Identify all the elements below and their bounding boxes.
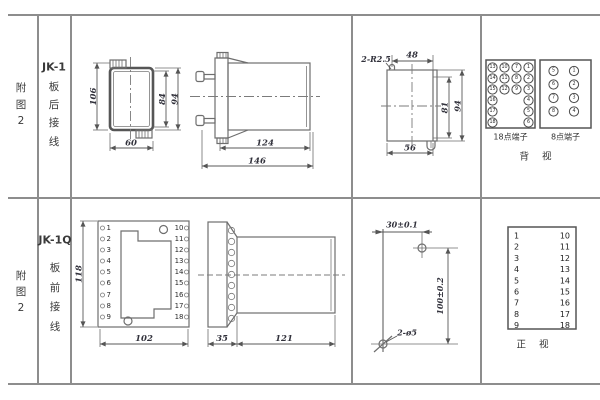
jk1-front-view: 106 84 94 60 xyxy=(89,57,181,151)
wiring-char: 板 xyxy=(49,80,60,93)
jk1q-front-view: 1 2 3 4 5 6 7 8 9 10 11 12 13 14 15 16 1… xyxy=(75,221,190,347)
terminal-number: 5 xyxy=(107,268,111,276)
terminal-number: 7 xyxy=(515,64,518,70)
table-number: 9 xyxy=(514,321,519,330)
terminal-number: 10 xyxy=(501,64,507,70)
wiring-char: 线 xyxy=(50,320,61,333)
table-number: 8 xyxy=(514,310,519,319)
row2-model-label: JK-1Q 板 前 接 线 xyxy=(37,234,71,334)
stepped-cutout-outline xyxy=(121,231,171,318)
dim-121: 121 xyxy=(237,315,335,347)
figure-char: 附 xyxy=(16,81,27,94)
terminal-circle: 8 xyxy=(512,74,521,83)
terminal-circle: 17 xyxy=(488,107,497,116)
terminal-circle: 12 xyxy=(500,85,509,94)
wiring-char: 接 xyxy=(50,300,61,313)
table-number: 2 xyxy=(514,243,519,252)
dim-35: 35 xyxy=(208,316,237,347)
case-outline xyxy=(110,68,153,130)
terminal-circle: 4 xyxy=(569,107,578,116)
terminal-circle: 4 xyxy=(524,96,533,105)
terminal-number: 15 xyxy=(489,86,495,92)
model-name: JK-1 xyxy=(41,61,66,74)
terminal-number: 13 xyxy=(175,257,184,265)
terminal-circle: 11 xyxy=(500,74,509,83)
terminal-number: 6 xyxy=(527,119,530,125)
dim-81: 81 xyxy=(433,77,452,138)
mounting-screw-bottom xyxy=(196,116,215,126)
terminal-number: 1 xyxy=(527,64,530,70)
terminal-number: 1 xyxy=(107,224,111,232)
terminal-number: 4 xyxy=(107,257,112,265)
flange-plate xyxy=(215,58,228,138)
rear-view-label: 背 视 xyxy=(519,151,556,163)
terminal-circle: 16 xyxy=(488,96,497,105)
front-view-label: 正 视 xyxy=(516,339,553,351)
table-number: 18 xyxy=(560,321,570,330)
figure-char: 图 xyxy=(16,286,27,298)
taper-line-top xyxy=(228,58,248,63)
terminal-number: 3 xyxy=(527,86,530,92)
terminal-number: 2 xyxy=(107,235,111,243)
terminal-number: 8 xyxy=(515,75,518,81)
table-number: 12 xyxy=(560,254,570,263)
jk1q-side-view: 35 121 xyxy=(198,222,345,347)
terminal-circle: 7 xyxy=(549,93,558,102)
dim-label: 30±0.1 xyxy=(386,220,418,230)
terminal-number: 6 xyxy=(552,81,555,87)
drilling-plan: 30±0.1 100±0.2 2-ø5 xyxy=(371,220,458,353)
radius-note: 2-R2.5 xyxy=(360,54,391,69)
terminal-number: 17 xyxy=(175,302,184,310)
terminal-number: 2 xyxy=(527,75,530,81)
wiring-char: 板 xyxy=(50,261,61,274)
dim-label: 124 xyxy=(256,139,274,149)
terminal-18pt-label: 18点端子 xyxy=(493,132,527,142)
terminal-18pt-box: 13 14 15 16 17 18 10 11 12 7 8 9 1 2 3 4… xyxy=(486,60,535,142)
figure-char: 图 xyxy=(16,99,27,111)
dim-106: 106 xyxy=(89,63,110,130)
terminal-number: 14 xyxy=(489,75,495,81)
dim-100: 100±0.2 xyxy=(435,248,448,344)
relay-dimension-figure-page: 附 图 2 JK-1 板 后 接 线 xyxy=(0,0,600,400)
terminal-circle: 3 xyxy=(569,93,578,102)
figure-char: 2 xyxy=(18,302,25,314)
terminal-number: 16 xyxy=(489,97,495,103)
terminal-number: 11 xyxy=(501,75,507,81)
dim-124: 124 xyxy=(220,132,310,151)
terminal-number: 18 xyxy=(489,119,495,125)
table-number: 16 xyxy=(560,299,570,308)
dim-label: 94 xyxy=(171,93,181,105)
terminal-block-side-top xyxy=(217,53,228,59)
row1-figure-number: 附 图 2 xyxy=(16,81,27,127)
table-number: 5 xyxy=(514,276,519,285)
terminal-number: 1 xyxy=(572,68,575,74)
figure-char: 2 xyxy=(18,115,25,127)
terminal-number: 15 xyxy=(175,279,184,287)
terminal-number: 5 xyxy=(527,108,530,114)
terminal-number: 7 xyxy=(107,291,111,299)
dim-label: 102 xyxy=(135,334,153,344)
terminal-number: 3 xyxy=(107,246,111,254)
dim-84: 84 xyxy=(153,71,169,127)
table-number: 10 xyxy=(560,232,570,241)
terminal-number: 12 xyxy=(175,246,184,254)
dim-60: 60 xyxy=(110,133,153,151)
terminal-number: 8 xyxy=(107,302,111,310)
dim-label: 146 xyxy=(248,157,266,167)
terminal-number: 17 xyxy=(489,108,495,114)
dim-label: 35 xyxy=(216,334,228,344)
figure-char: 附 xyxy=(16,269,27,282)
terminal-circle: 9 xyxy=(512,85,521,94)
holes-label: 2-ø5 xyxy=(396,328,417,338)
terminal-circle: 14 xyxy=(488,74,497,83)
case-inner-outline xyxy=(114,72,150,127)
terminal-number: 4 xyxy=(527,97,530,103)
mounting-screw-top xyxy=(196,72,215,82)
mount-hole-top xyxy=(160,226,168,234)
terminal-number: 14 xyxy=(175,268,184,276)
dim-label: 94 xyxy=(454,100,464,112)
terminal-number: 18 xyxy=(175,313,184,321)
dim-label: 100±0.2 xyxy=(435,277,445,315)
terminal-block-side-bottom xyxy=(217,138,228,144)
dim-label: 121 xyxy=(275,334,293,344)
terminal-number: 5 xyxy=(552,68,555,74)
front-terminals-left: 1 2 3 4 5 6 7 8 9 xyxy=(101,224,112,321)
terminal-circle: 18 xyxy=(488,118,497,127)
wiring-char: 线 xyxy=(49,135,60,148)
table-number: 3 xyxy=(514,254,519,263)
panel-cutout-view: 2-R2.5 48 81 94 56 xyxy=(360,51,465,157)
dim-102: 102 xyxy=(100,329,188,347)
terminal-circle: 1 xyxy=(524,63,533,72)
terminal-number: 9 xyxy=(515,86,518,92)
dim-label: 106 xyxy=(89,88,99,106)
table-number: 11 xyxy=(560,243,570,252)
terminal-number: 16 xyxy=(175,291,184,299)
terminal-number: 12 xyxy=(501,86,507,92)
terminal-circle: 6 xyxy=(549,80,558,89)
wiring-char: 接 xyxy=(49,116,60,129)
dim-label: 118 xyxy=(75,265,85,283)
terminal-circle: 8 xyxy=(549,107,558,116)
dim-label: 48 xyxy=(406,51,418,61)
table-left-column: 1 2 3 4 5 6 7 8 9 xyxy=(514,232,519,331)
table-number: 13 xyxy=(560,265,570,274)
table-number: 17 xyxy=(560,310,570,319)
terminal-8pt-box: 5 6 7 8 1 2 3 4 8点端子 xyxy=(540,60,591,142)
table-number: 7 xyxy=(514,299,519,308)
terminal-number: 4 xyxy=(572,108,575,114)
dim-146: 146 xyxy=(202,130,313,169)
radius-label: 2-R2.5 xyxy=(360,54,391,64)
table-right-column: 10 11 12 13 14 15 16 17 18 xyxy=(560,232,570,331)
wiring-char: 后 xyxy=(49,99,60,111)
taper-line-bottom xyxy=(228,130,248,138)
terminal-circle: 5 xyxy=(524,107,533,116)
terminal-circle: 1 xyxy=(569,66,578,75)
terminal-circle: 6 xyxy=(524,118,533,127)
model-name: JK-1Q xyxy=(37,234,71,247)
figure-drawing-canvas: 附 图 2 JK-1 板 后 接 线 xyxy=(0,0,600,400)
terminal-circle: 10 xyxy=(500,63,509,72)
jk1-side-view: 124 146 xyxy=(190,53,320,170)
front-terminals-right: 10 11 12 13 14 15 16 17 18 xyxy=(175,224,189,321)
dim-label: 81 xyxy=(441,102,451,114)
dim-label: 56 xyxy=(404,144,416,154)
terminal-circle: 13 xyxy=(488,63,497,72)
terminal-circle: 7 xyxy=(512,63,521,72)
terminal-number: 2 xyxy=(572,81,575,87)
table-number: 15 xyxy=(560,288,570,297)
terminal-table-front: 1 2 3 4 5 6 7 8 9 10 11 12 13 14 15 16 1… xyxy=(508,227,576,351)
terminal-number: 8 xyxy=(552,108,555,114)
terminal-circle: 2 xyxy=(524,74,533,83)
row2-figure-number: 附 图 2 xyxy=(16,269,27,314)
row1-model-label: JK-1 板 后 接 线 xyxy=(41,61,66,149)
terminal-number: 6 xyxy=(107,279,112,287)
dim-label: 60 xyxy=(125,139,137,149)
terminal-circle: 3 xyxy=(524,85,533,94)
dim-label: 84 xyxy=(158,93,168,105)
terminal-number: 11 xyxy=(175,235,184,243)
table-number: 4 xyxy=(514,265,519,274)
terminal-number: 10 xyxy=(175,224,184,232)
terminal-box-outline xyxy=(540,60,591,128)
dim-48: 48 xyxy=(392,51,433,71)
terminal-number: 7 xyxy=(552,95,555,101)
terminal-number: 3 xyxy=(572,95,575,101)
dim-56: 56 xyxy=(387,143,433,156)
table-number: 6 xyxy=(514,288,519,297)
wiring-char: 前 xyxy=(50,281,61,294)
holes-note: 2-ø5 xyxy=(386,328,417,343)
terminal-8pt-label: 8点端子 xyxy=(551,132,580,142)
dim-118: 118 xyxy=(75,221,98,327)
table-number: 1 xyxy=(514,232,519,241)
terminal-number: 9 xyxy=(107,313,111,321)
terminal-circle: 2 xyxy=(569,80,578,89)
terminal-number: 13 xyxy=(489,64,495,70)
terminal-circle: 15 xyxy=(488,85,497,94)
terminal-circle: 5 xyxy=(549,66,558,75)
table-number: 14 xyxy=(560,276,570,285)
